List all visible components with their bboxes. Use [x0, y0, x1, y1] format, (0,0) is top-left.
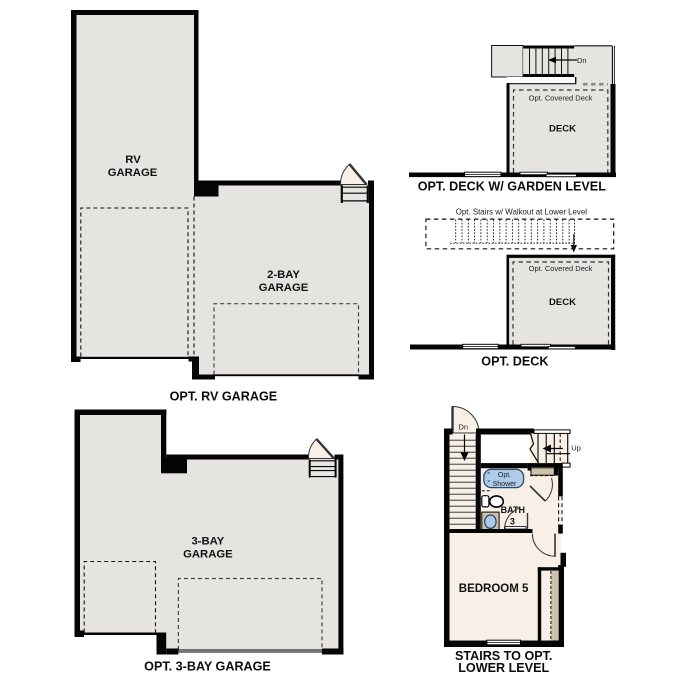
svg-text:Dn: Dn — [577, 56, 587, 65]
svg-text:Shower: Shower — [493, 481, 517, 488]
svg-text:3-BAY: 3-BAY — [191, 535, 224, 547]
svg-text:OPT. 3-BAY GARAGE: OPT. 3-BAY GARAGE — [144, 659, 271, 673]
svg-text:DECK: DECK — [549, 297, 576, 308]
svg-text:Up: Up — [571, 444, 581, 453]
svg-text:OPT. RV GARAGE: OPT. RV GARAGE — [170, 390, 278, 404]
svg-text:GARAGE: GARAGE — [108, 167, 158, 179]
svg-text:Opt. Covered Deck: Opt. Covered Deck — [529, 93, 593, 102]
svg-text:DECK: DECK — [549, 124, 576, 135]
svg-text:2-BAY: 2-BAY — [267, 269, 300, 281]
svg-text:BATH: BATH — [501, 505, 525, 515]
svg-text:OPT. DECK W/ GARDEN LEVEL: OPT. DECK W/ GARDEN LEVEL — [418, 180, 607, 194]
svg-text:3: 3 — [510, 516, 515, 526]
svg-text:GARAGE: GARAGE — [183, 549, 233, 561]
svg-text:Dn: Dn — [459, 423, 469, 432]
svg-text:LOWER LEVEL: LOWER LEVEL — [458, 661, 549, 675]
svg-text:BEDROOM 5: BEDROOM 5 — [459, 583, 529, 595]
svg-text:Opt.: Opt. — [498, 472, 511, 479]
svg-text:Opt. Stairs w/ Walkout at Lowe: Opt. Stairs w/ Walkout at Lower Level — [456, 208, 588, 217]
svg-text:Opt. Covered Deck: Opt. Covered Deck — [529, 264, 593, 273]
svg-text:RV: RV — [125, 154, 141, 166]
svg-text:OPT. DECK: OPT. DECK — [481, 355, 548, 369]
svg-text:GARAGE: GARAGE — [259, 282, 309, 294]
